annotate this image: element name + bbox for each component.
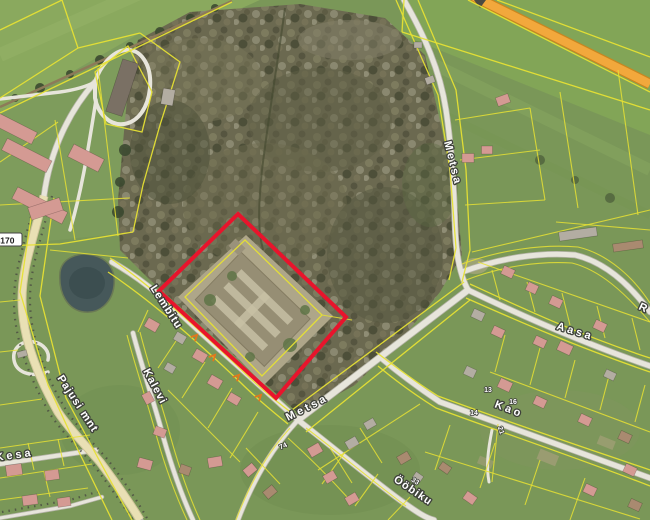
road-number-text: 4170 xyxy=(0,236,15,246)
house-number: 13 xyxy=(484,387,492,394)
pond-deep xyxy=(69,267,105,299)
road-number-badge: 4170 xyxy=(0,233,22,246)
map-viewport[interactable]: Lembitu Kalevi Metsa Metsa Aasa Kao Ööbi… xyxy=(0,0,650,520)
house-number: 14 xyxy=(470,410,478,417)
aerial-map-canvas[interactable]: Lembitu Kalevi Metsa Metsa Aasa Kao Ööbi… xyxy=(0,0,650,520)
house-number: 16 xyxy=(509,399,517,406)
